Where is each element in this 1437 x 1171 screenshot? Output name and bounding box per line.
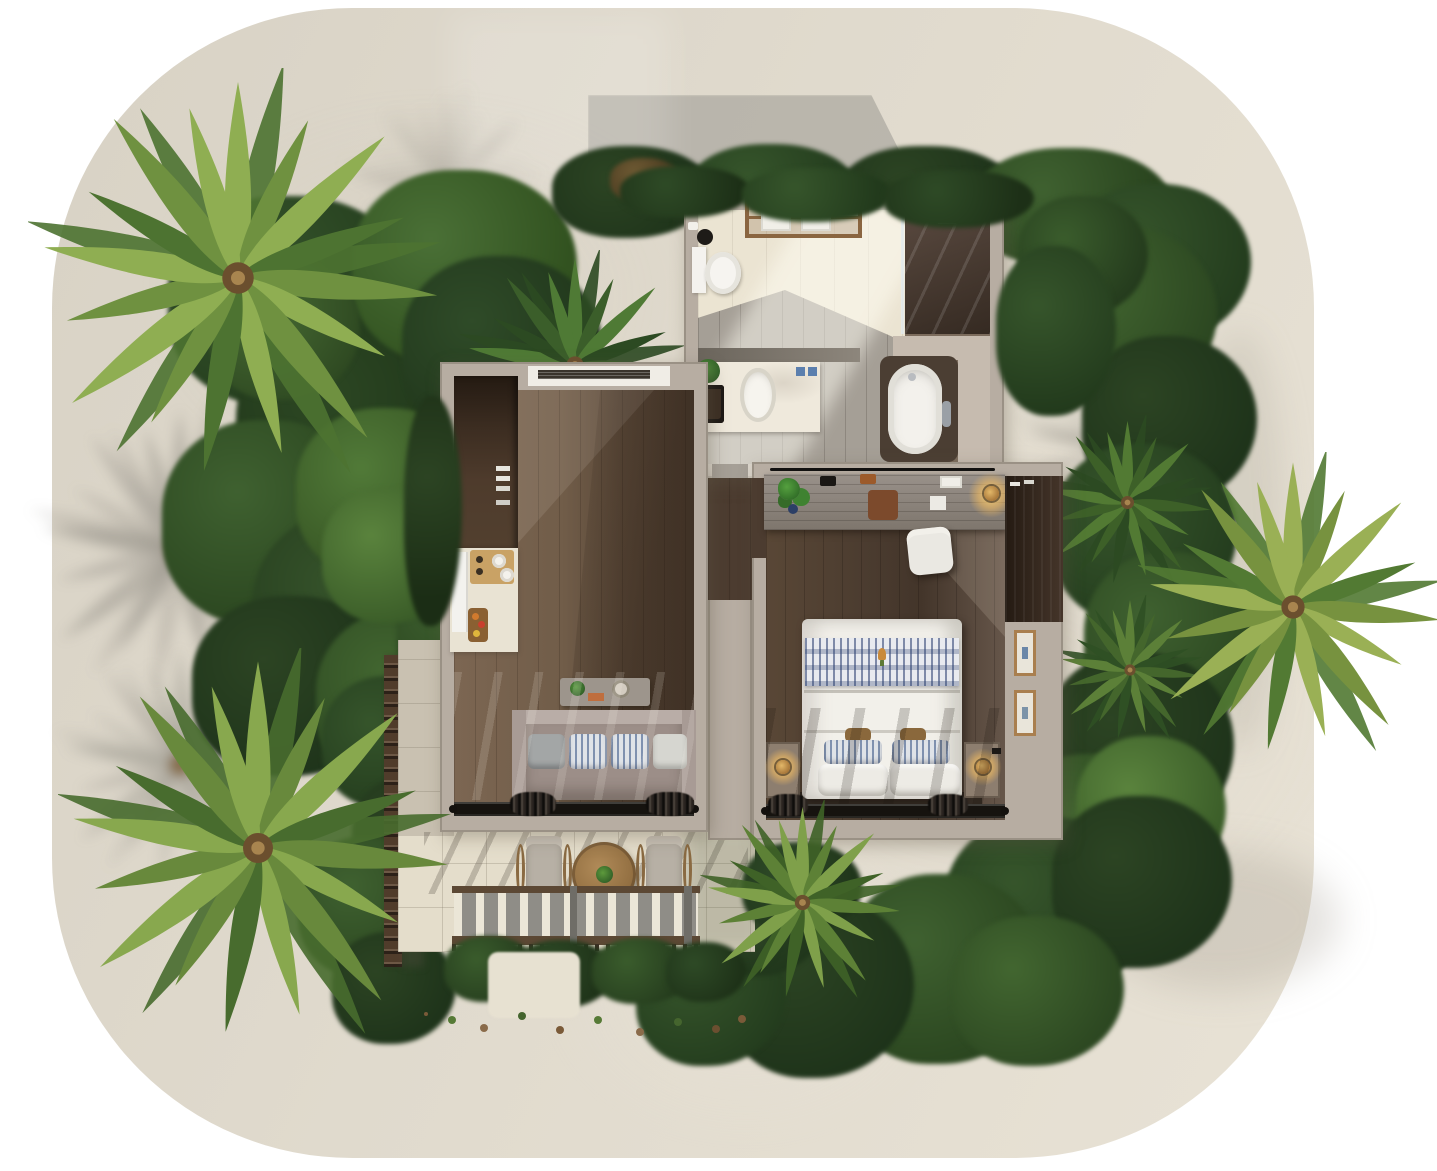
foliage-bush — [996, 246, 1116, 416]
bathroom-door-opening — [712, 464, 748, 478]
bathtub-surround — [958, 336, 990, 470]
flower-sprig — [878, 648, 886, 660]
folded-towel — [940, 476, 962, 488]
waste-bin — [697, 229, 713, 245]
palm-tree-top-left — [28, 68, 448, 488]
palm-tree-bottom-left — [58, 648, 458, 1048]
table-plant — [596, 866, 613, 883]
vanity-mirror — [698, 348, 860, 362]
picture-frame — [1014, 690, 1036, 736]
sun-stripes — [454, 672, 694, 800]
curtain-bunch — [928, 794, 968, 816]
plate — [500, 568, 514, 582]
wardrobe — [1005, 476, 1063, 622]
toilet-paper — [688, 222, 698, 230]
tub-hand-shower — [942, 401, 951, 427]
hedge-bush — [742, 168, 892, 222]
wardrobe-linen — [1010, 482, 1020, 486]
accent-palm — [700, 800, 905, 1005]
villa-aerial-render — [0, 0, 1437, 1171]
duvet-fold — [804, 690, 960, 693]
desk-chair — [906, 526, 955, 576]
palm-tree-right — [1138, 452, 1437, 762]
vestibule-floor — [708, 478, 752, 600]
curtain-bunch — [646, 792, 694, 816]
burner — [476, 556, 483, 563]
toilet-bowl — [705, 252, 741, 294]
plant-pot — [788, 504, 798, 514]
sand-path — [488, 952, 580, 1018]
picture-frame — [1014, 630, 1036, 676]
desk-rail — [770, 468, 995, 471]
vanity-sink — [740, 368, 776, 422]
bedroom — [752, 462, 1063, 840]
living-room — [440, 362, 708, 832]
frame-art — [1022, 707, 1028, 719]
plate — [492, 554, 506, 568]
fruit-basket — [468, 608, 488, 642]
leather-mat — [868, 490, 898, 520]
pergola-divider — [684, 886, 692, 946]
cabinet-dishes — [496, 466, 510, 471]
bathroom — [684, 195, 1004, 478]
kitchen-cabinets — [454, 376, 518, 550]
pergola-divider — [570, 886, 577, 946]
air-vent — [538, 370, 650, 379]
hedge-bush — [620, 166, 750, 218]
blue-glassware — [796, 367, 805, 376]
frame-art — [1022, 647, 1028, 659]
monstera-plant — [778, 478, 800, 500]
desk-lamp — [984, 486, 999, 501]
door-rail-finial — [1001, 807, 1009, 815]
throw-blanket — [805, 638, 959, 686]
fruit — [472, 613, 479, 620]
desk-tray — [820, 476, 836, 486]
hedge-bush — [884, 170, 1034, 228]
toilet-tank — [692, 247, 706, 293]
curtain-bunch — [510, 792, 556, 816]
foliage-bush — [952, 916, 1124, 1066]
sun-stripes — [766, 708, 1005, 804]
entry-vestibule — [708, 462, 752, 840]
note-card — [930, 496, 946, 510]
desk-item — [860, 474, 876, 484]
tub-faucet — [908, 373, 916, 381]
